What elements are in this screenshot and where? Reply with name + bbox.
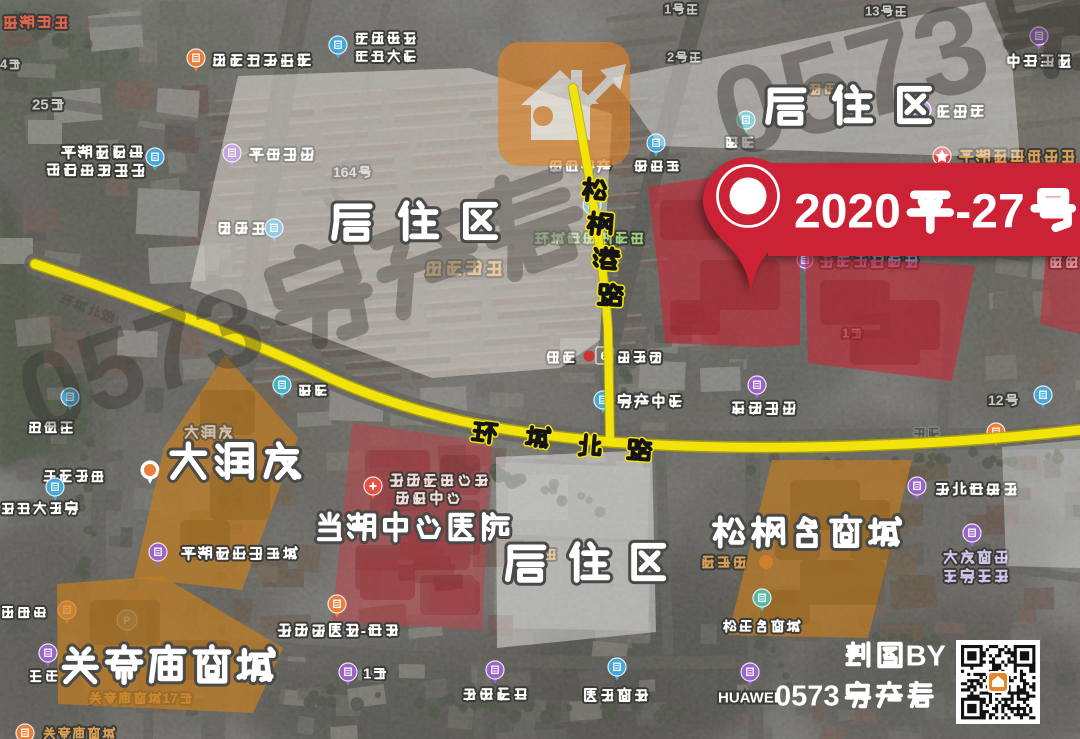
svg-text:-: - <box>361 623 366 640</box>
svg-text:1: 1 <box>664 2 671 17</box>
svg-text:4: 4 <box>0 57 8 72</box>
svg-text:12: 12 <box>988 392 1004 408</box>
svg-text:BY: BY <box>906 640 946 672</box>
svg-text:2020: 2020 <box>794 185 901 238</box>
svg-text:-27: -27 <box>955 185 1024 238</box>
svg-text:25: 25 <box>32 96 49 113</box>
svg-text:1: 1 <box>363 665 371 682</box>
svg-text:0573: 0573 <box>775 680 840 712</box>
svg-text:HUAWEI: HUAWEI <box>718 689 778 706</box>
svg-text:2: 2 <box>667 50 674 65</box>
